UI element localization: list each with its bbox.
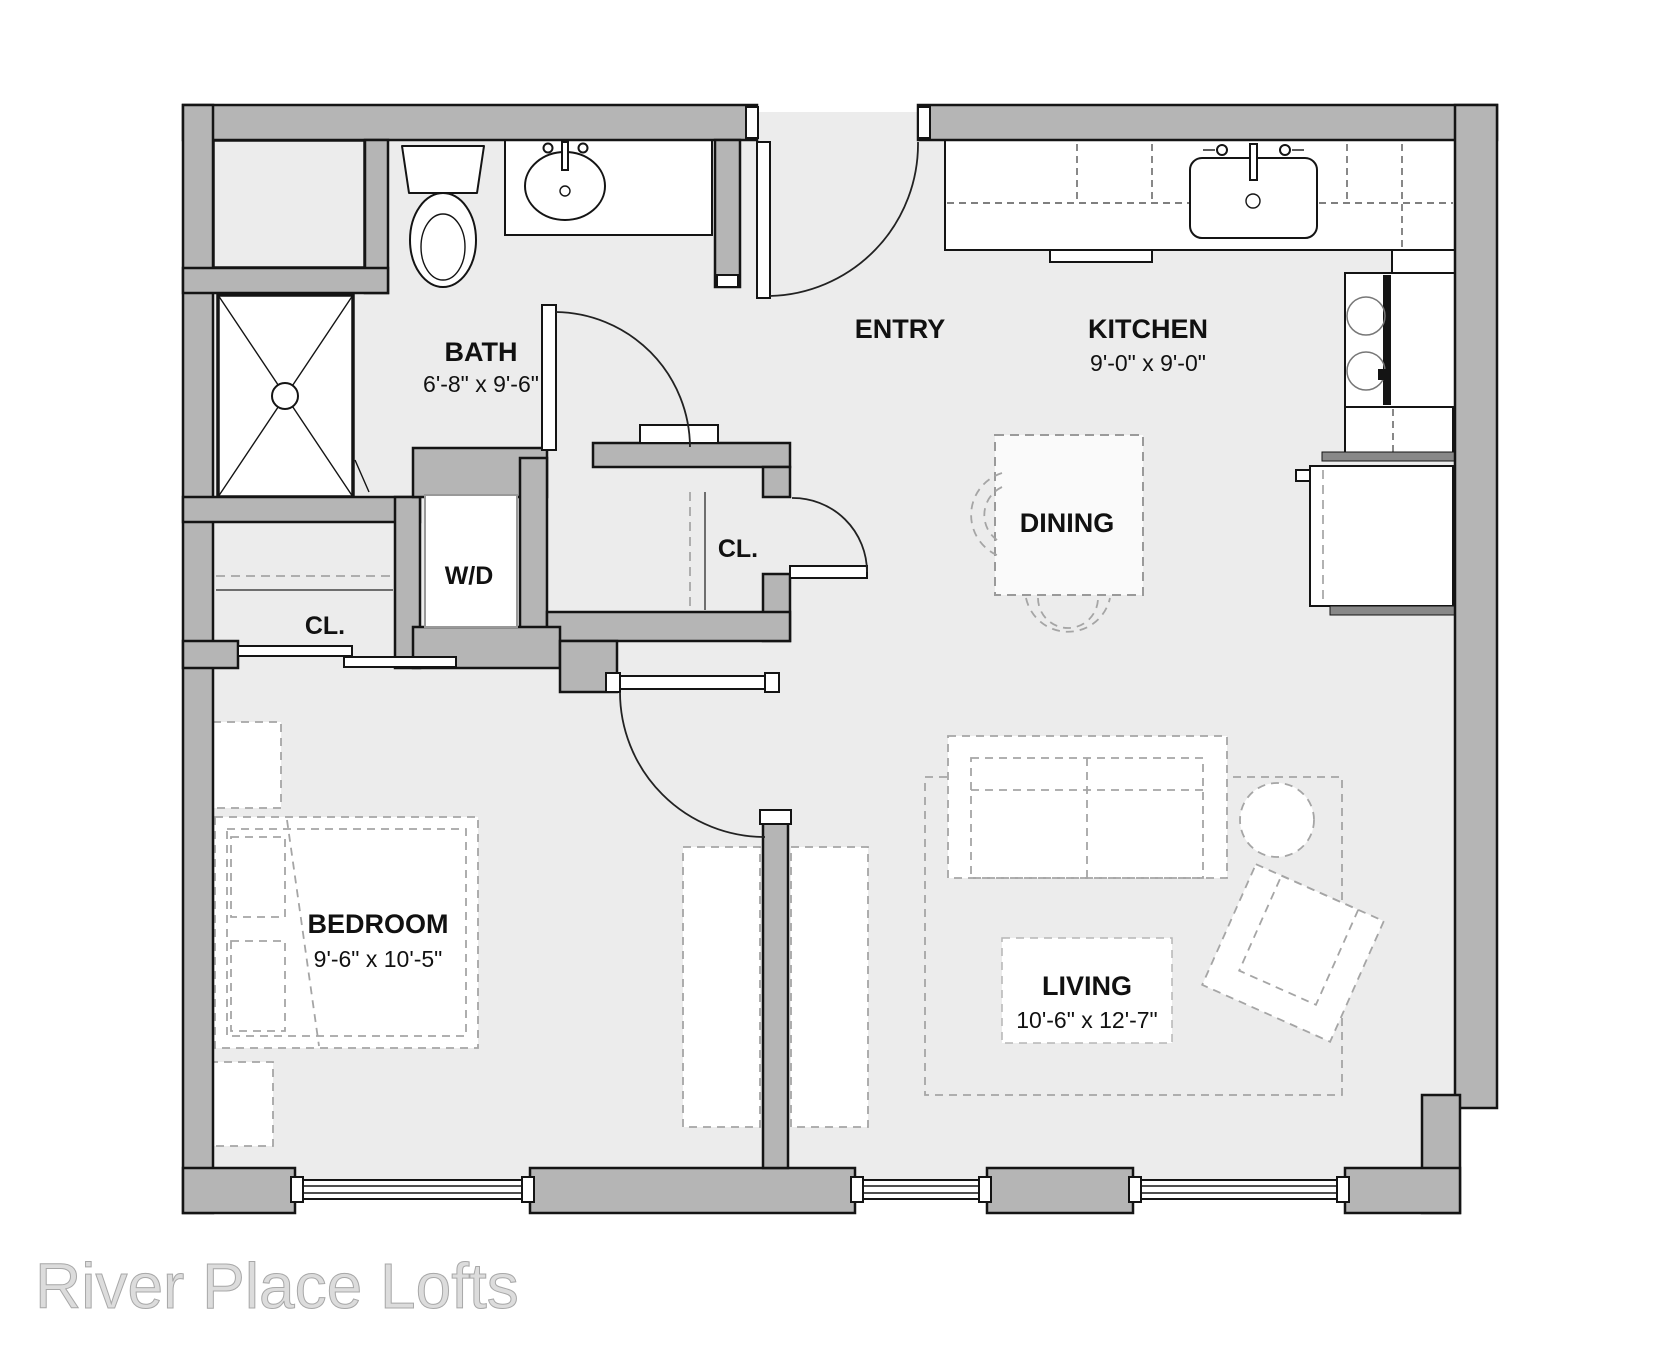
wall-right xyxy=(1455,105,1497,1108)
bath-door-leaf xyxy=(542,305,556,450)
fridge-icon xyxy=(1296,452,1457,615)
nightstand xyxy=(213,722,281,808)
wall-bottom-pier xyxy=(530,1168,855,1213)
room-label-bedroom: BEDROOM xyxy=(308,909,449,939)
shower-icon xyxy=(218,295,369,497)
door-jamb xyxy=(746,107,758,138)
toilet-icon xyxy=(402,146,484,287)
faucet-handle xyxy=(1217,145,1227,155)
window-jamb xyxy=(1129,1177,1141,1202)
wall-top-right xyxy=(918,105,1497,140)
label-washer-dryer: W/D xyxy=(445,562,494,590)
label-closet-bedroom: CL. xyxy=(305,612,345,640)
room-dims-bedroom: 9'-6" x 10'-5" xyxy=(314,946,443,972)
wall-cap xyxy=(717,275,738,287)
floor-plan-page: BATH 6'-8" x 9'-6" ENTRY KITCHEN 9'-0" x… xyxy=(0,0,1680,1352)
toilet-bowl xyxy=(410,193,476,287)
stove-body xyxy=(1345,273,1455,407)
side-table xyxy=(1240,783,1314,857)
kitchen-cabinet xyxy=(1345,407,1453,455)
door-jamb xyxy=(606,673,620,692)
fridge-handle xyxy=(1296,470,1310,481)
stove-icon xyxy=(1345,273,1455,407)
room-label-dining: DINING xyxy=(1020,508,1115,538)
property-title: River Place Lofts xyxy=(35,1250,519,1322)
wall-closet-south xyxy=(547,612,790,641)
room-label-kitchen: KITCHEN xyxy=(1088,314,1208,344)
floor-plan: BATH 6'-8" x 9'-6" ENTRY KITCHEN 9'-0" x… xyxy=(0,0,1680,1352)
faucet-handle xyxy=(579,144,588,153)
wall-closet-north xyxy=(593,443,790,467)
wall-bottom-pier xyxy=(987,1168,1133,1213)
window-jamb xyxy=(979,1177,991,1202)
wall-bath-entry xyxy=(715,140,740,287)
wall-bath-south xyxy=(183,497,420,522)
room-dims-living: 10'-6" x 12'-7" xyxy=(1016,1007,1157,1033)
pillow xyxy=(231,941,285,1031)
fridge-body xyxy=(1310,466,1453,606)
nightstand xyxy=(210,1062,273,1146)
window-jamb xyxy=(291,1177,303,1202)
wall-corridor-jamb xyxy=(183,641,238,668)
faucet-spout xyxy=(562,142,568,170)
sliding-door-panel xyxy=(344,657,456,667)
faucet-handle xyxy=(1280,145,1290,155)
label-closet-entry: CL. xyxy=(718,535,758,563)
dishwasher-front xyxy=(1050,250,1152,262)
shower-drain xyxy=(272,383,298,409)
window xyxy=(291,1177,534,1202)
dresser xyxy=(683,847,760,1127)
wall-bottom-pier xyxy=(1345,1168,1460,1213)
wall-bottom-pier xyxy=(183,1168,295,1213)
window-glass xyxy=(857,1180,985,1199)
half-wall xyxy=(640,425,718,443)
mech-closet xyxy=(213,140,365,268)
kitchen-faucet xyxy=(1250,144,1257,180)
dresser xyxy=(791,847,868,1127)
entry-door-leaf xyxy=(757,142,770,298)
mech-closet-box xyxy=(213,140,365,268)
faucet-handle xyxy=(544,144,553,153)
room-dims-bath: 6'-8" x 9'-6" xyxy=(423,371,539,397)
kitchen-sink-icon xyxy=(1190,144,1317,238)
counter-return xyxy=(1392,250,1455,273)
wall-mech-bottom xyxy=(183,268,388,293)
sliding-door-panel xyxy=(238,646,352,656)
room-label-living: LIVING xyxy=(1042,971,1132,1001)
stove-handle xyxy=(1378,369,1390,380)
window-jamb xyxy=(851,1177,863,1202)
room-label-bath: BATH xyxy=(445,337,518,367)
window-glass xyxy=(1135,1180,1343,1199)
room-label-entry: ENTRY xyxy=(855,314,946,344)
fridge-top-band xyxy=(1322,452,1457,461)
wall-closet-corner xyxy=(763,467,790,497)
pillow xyxy=(231,837,285,917)
window xyxy=(1129,1177,1349,1202)
window-jamb xyxy=(1337,1177,1349,1202)
partition-cap xyxy=(760,810,791,824)
window xyxy=(851,1177,991,1202)
washer-dryer-box xyxy=(425,495,517,627)
bedroom-door-leaf xyxy=(620,676,765,689)
bath-vanity-sink-icon xyxy=(505,140,712,235)
room-dims-kitchen: 9'-0" x 9'-0" xyxy=(1090,350,1206,376)
cabinet-box xyxy=(1345,407,1453,455)
closet-door-leaf xyxy=(790,566,867,578)
stove-divider xyxy=(1383,275,1391,405)
partition-wall xyxy=(763,822,788,1168)
toilet-tank xyxy=(402,146,484,193)
window-glass xyxy=(297,1180,528,1199)
window-jamb xyxy=(522,1177,534,1202)
wall-top-left xyxy=(183,105,757,140)
door-jamb xyxy=(918,107,930,138)
door-jamb xyxy=(765,673,779,692)
fridge-bottom-band xyxy=(1330,606,1457,615)
wall-wd-right xyxy=(520,458,547,652)
